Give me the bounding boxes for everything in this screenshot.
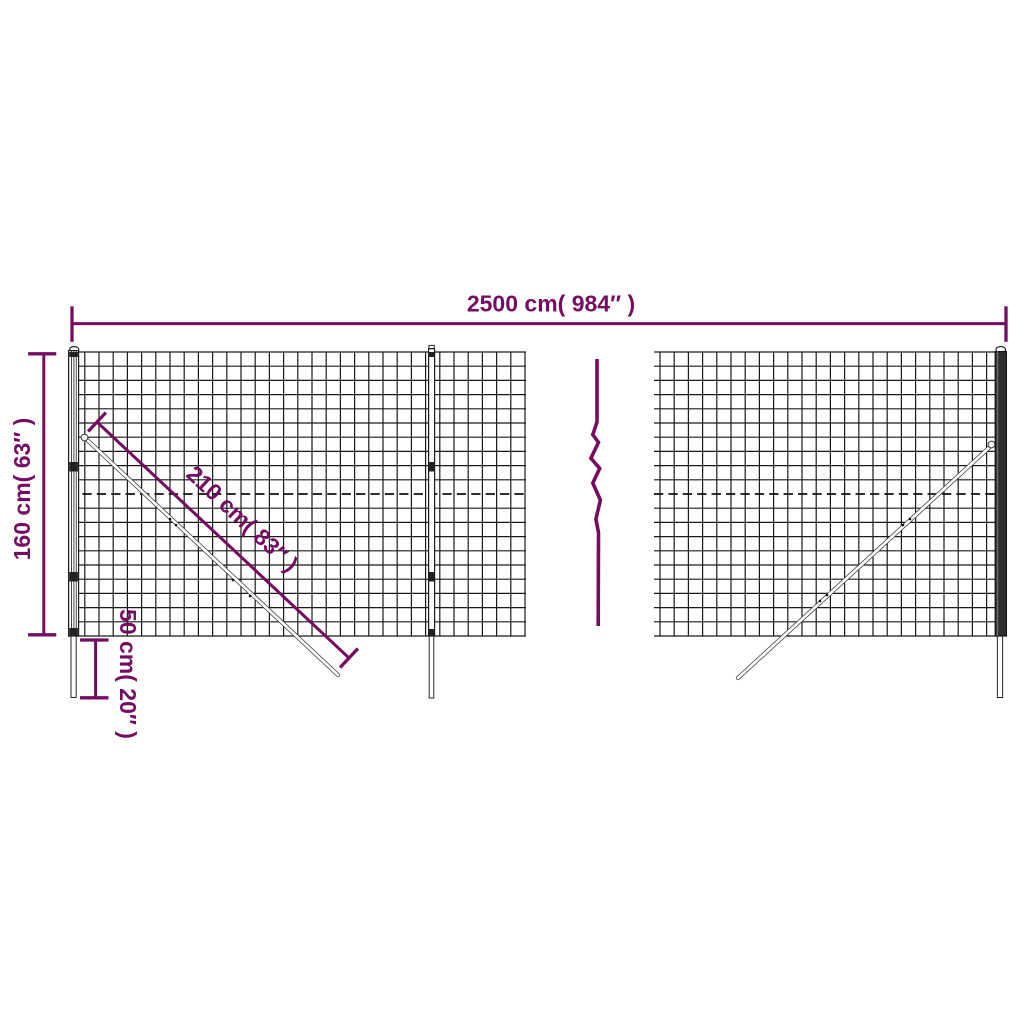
svg-text:160 cm( 63″ ): 160 cm( 63″ ) <box>9 418 35 561</box>
svg-text:50 cm( 20″ ): 50 cm( 20″ ) <box>115 609 141 739</box>
svg-text:2500 cm( 984″ ): 2500 cm( 984″ ) <box>467 291 635 317</box>
